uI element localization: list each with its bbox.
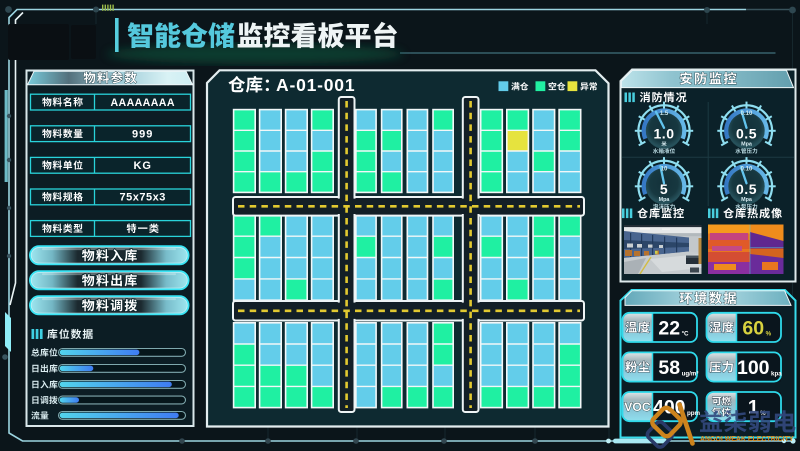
svg-text:Mpa: Mpa [741, 197, 753, 203]
svg-text:75x75x3: 75x75x3 [120, 192, 166, 204]
svg-text:58: 58 [658, 357, 680, 379]
svg-text:°C: °C [682, 331, 689, 338]
svg-text:1.5: 1.5 [660, 111, 669, 117]
svg-text:100: 100 [737, 357, 770, 379]
svg-text:Mpa: Mpa [659, 197, 671, 203]
svg-text:ANGOI WEAK ELECTRICITY: ANGOI WEAK ELECTRICITY [700, 436, 794, 443]
svg-text:22: 22 [658, 317, 680, 339]
svg-text:ug/m³: ug/m³ [682, 370, 699, 377]
svg-text:kpa: kpa [771, 370, 782, 377]
svg-text:Mpa: Mpa [741, 142, 753, 148]
svg-text:1.0: 1.0 [654, 126, 675, 142]
svg-text:KG: KG [133, 160, 152, 172]
svg-text:0.5: 0.5 [736, 181, 757, 197]
svg-text:A-01-001: A-01-001 [276, 75, 355, 95]
svg-text:0.10: 0.10 [741, 166, 753, 172]
svg-text:AAAAAAAA: AAAAAAAA [110, 97, 174, 109]
svg-text:VOC: VOC [624, 400, 651, 414]
svg-text:ppm: ppm [687, 410, 701, 417]
svg-text:999: 999 [132, 129, 153, 141]
svg-text:0.10: 0.10 [741, 111, 753, 117]
svg-text:5: 5 [660, 181, 668, 197]
svg-text:10: 10 [661, 166, 668, 172]
svg-text:%: % [766, 331, 772, 338]
svg-text:0.5: 0.5 [736, 126, 757, 142]
svg-text:60: 60 [742, 317, 764, 339]
